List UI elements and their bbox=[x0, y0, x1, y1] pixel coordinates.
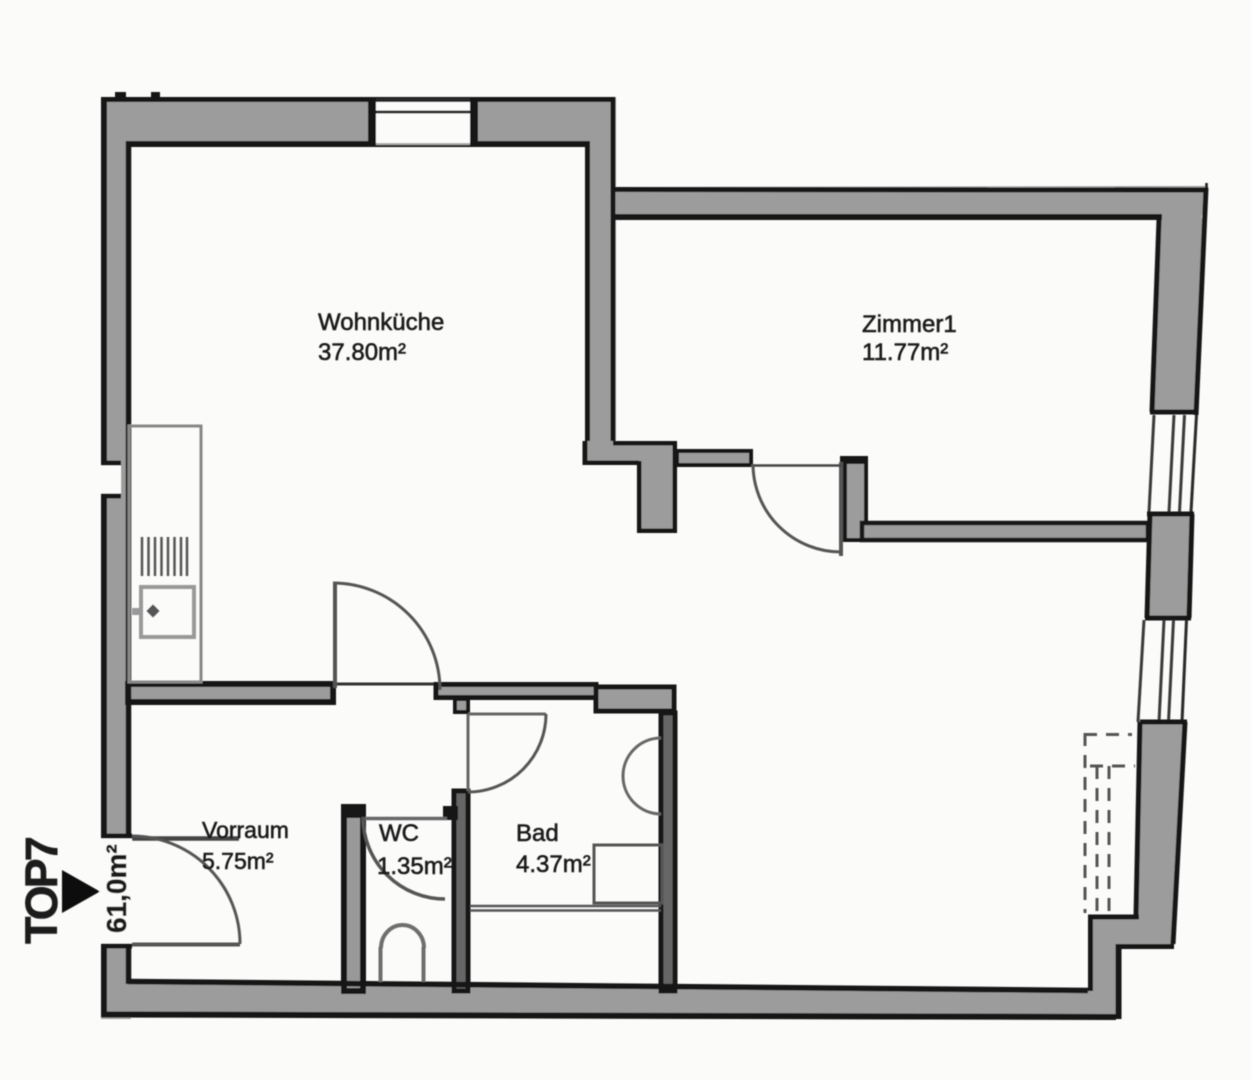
svg-text:WC: WC bbox=[379, 820, 419, 847]
svg-text:4.37m²: 4.37m² bbox=[516, 851, 591, 878]
svg-text:37.80m²: 37.80m² bbox=[318, 339, 406, 366]
svg-text:Bad: Bad bbox=[516, 820, 559, 847]
svg-text:61,0m²: 61,0m² bbox=[101, 844, 132, 933]
svg-text:5.75m²: 5.75m² bbox=[202, 848, 274, 874]
svg-text:Wohnküche: Wohnküche bbox=[318, 309, 444, 336]
svg-text:Vorraum: Vorraum bbox=[202, 817, 289, 843]
svg-text:11.77m²: 11.77m² bbox=[862, 339, 948, 366]
svg-text:Zimmer1: Zimmer1 bbox=[862, 311, 957, 338]
svg-text:TOP7: TOP7 bbox=[16, 837, 67, 944]
svg-text:1.35m²: 1.35m² bbox=[377, 853, 452, 880]
